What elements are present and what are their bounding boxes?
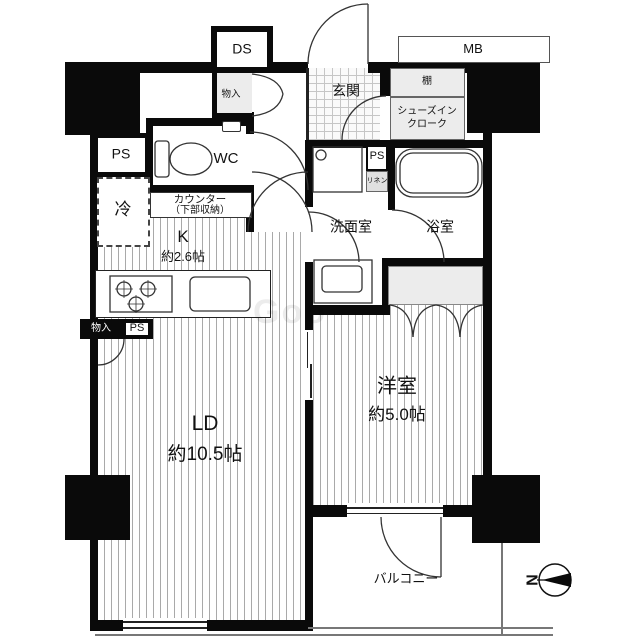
hall-storage-door-arc-a	[252, 74, 283, 94]
ld-ps-label: PS	[130, 323, 145, 335]
wc-label: WC	[214, 151, 239, 167]
hall-storage-door-arc-b	[252, 94, 283, 116]
vanity-sink	[322, 266, 362, 292]
western-closet-door-arc-b	[413, 305, 436, 337]
shoes-closet-label-line1: シューズイン	[397, 107, 457, 118]
washroom-ps-label: PS	[370, 151, 385, 163]
western-closet-door-arc-d	[460, 305, 483, 337]
western-closet-door-arc-a	[390, 305, 413, 337]
bathtub-inner	[400, 153, 478, 193]
shoes-closet-label-line2: クローク	[407, 120, 447, 131]
ld-door-arc-a	[252, 172, 312, 232]
counter-label-line2: （下部収納）	[170, 206, 230, 217]
ps-top-left-label: PS	[112, 147, 131, 162]
ld-storage-label: 物入	[91, 324, 111, 335]
floor-plan: Goo	[0, 0, 640, 640]
western-closet-door-arc-c	[436, 305, 460, 337]
kitchen-sink	[190, 277, 250, 311]
hall-storage-label: 物入	[221, 90, 240, 100]
wc-door-arc	[250, 132, 308, 190]
toilet-tank	[155, 141, 169, 177]
living-dining-label: LD	[192, 413, 219, 435]
compass-north-label: N	[522, 574, 539, 586]
balcony-door-arc	[381, 517, 441, 577]
washroom-label: 洗面室	[330, 220, 372, 235]
western-room-label: 洋室	[377, 377, 417, 398]
shoes-closet-door-arc	[342, 96, 386, 140]
refrigerator-label: 冷	[115, 201, 132, 219]
bathtub-outer	[396, 149, 482, 197]
washer-pan	[313, 147, 362, 192]
living-dining-area-label: 約10.5帖	[168, 445, 243, 465]
symbols-layer	[0, 0, 640, 640]
western-room-area-label: 約5.0帖	[368, 406, 426, 424]
kitchen-area-label: 約2.6帖	[161, 250, 205, 264]
washer-drain	[316, 150, 326, 160]
linen-label: リネン	[367, 177, 388, 184]
entrance-door-arc	[308, 4, 368, 64]
balcony-label: バルコニー	[374, 572, 439, 586]
toilet-bowl	[170, 143, 212, 175]
shelf-label: 棚	[422, 77, 432, 88]
ds-label: DS	[232, 42, 251, 57]
ld-door-arc-b	[248, 172, 308, 232]
ld-storage-door-arc	[98, 339, 124, 365]
kitchen-label: K	[177, 228, 188, 246]
entrance-label: 玄関	[332, 84, 360, 99]
mb-label: MB	[463, 42, 483, 56]
bathroom-label: 浴室	[426, 220, 454, 235]
